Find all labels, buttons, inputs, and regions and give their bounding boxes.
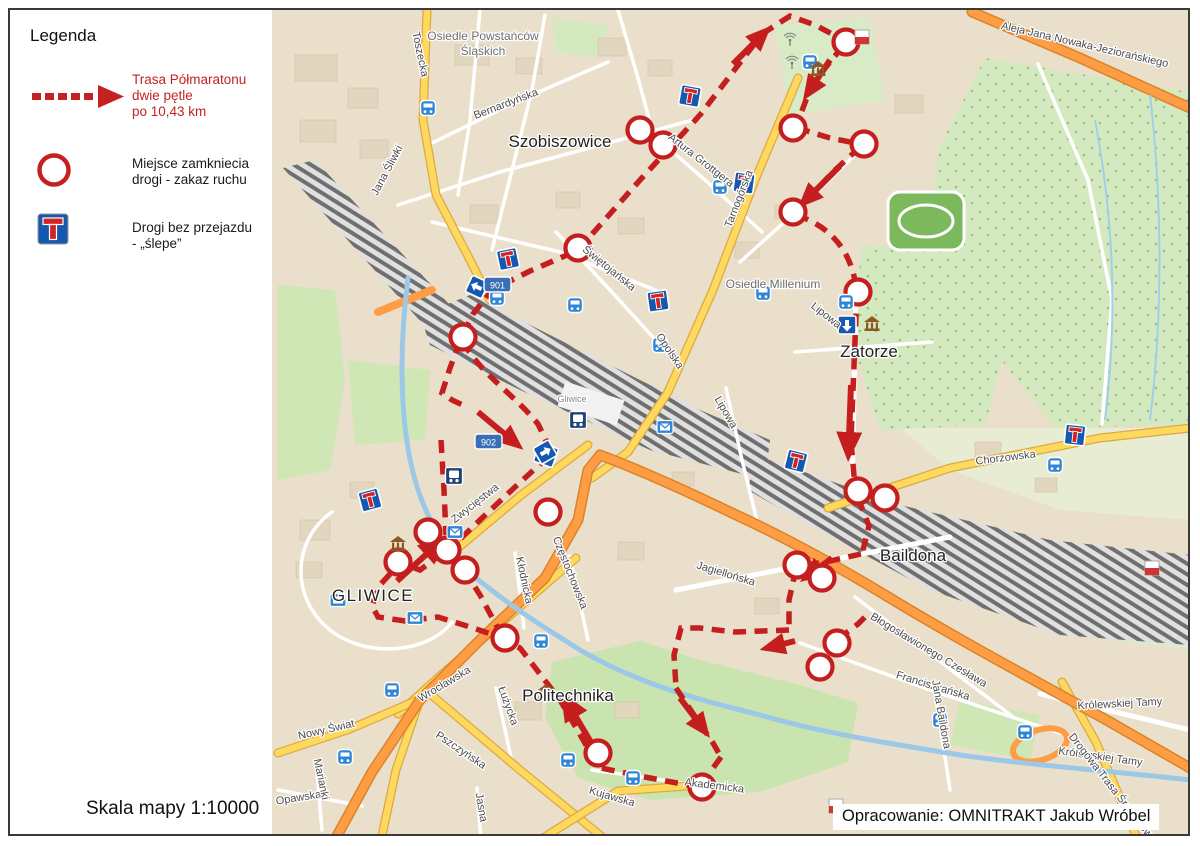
route-map-page: 901 902 Osiedle Powstańców Śląskich Szob… [0,0,1200,846]
bus-stop-icon [1048,458,1063,473]
dead-end-sign-icon [678,84,701,107]
place-label: Osiedle Powstańców [427,29,539,43]
road-closure-marker [825,631,850,656]
road-closure-marker [808,655,833,680]
svg-text:902: 902 [481,438,496,448]
post-office-icon [447,526,463,539]
flag-marker-icon [855,30,869,44]
road-closure-marker [435,538,460,563]
road-closure-marker [781,116,806,141]
legend-item-deadend: Drogi bez przejazdu - „ślepe” [30,210,270,260]
road-closure-marker [628,118,653,143]
place-label: Politechnika [522,686,614,705]
credit-label: Opracowanie: OMNITRAKT Jakub Wróbel [833,804,1159,830]
road-closure-marker [493,626,518,651]
dead-end-sign-icon [784,449,808,473]
bus-stop-icon [490,291,505,306]
road-closure-marker [873,486,898,511]
bus-stop-icon [338,750,353,765]
stadium [888,192,964,250]
road-closure-marker [846,479,871,504]
train-station-icon [570,412,587,429]
place-label-gliwice: GLIWICE [332,586,414,605]
bus-stop-icon [626,771,641,786]
bus-stop-icon [803,55,818,70]
road-closure-marker [785,553,810,578]
road-closure-marker [386,550,411,575]
legend-deadend-text: Drogi bez przejazdu - „ślepe” [132,220,252,252]
dead-end-sign-icon [36,212,70,246]
dead-end-sign-icon [1064,424,1086,446]
train-station-icon [446,468,463,485]
bus-stop-icon [385,683,400,698]
bus-stop-icon [1018,725,1033,740]
bus-stop-icon [421,101,436,116]
legend-item-route: Trasa Półmaratonu dwie pętle po 10,43 km [30,72,270,132]
bus-stop-icon [568,298,583,313]
place-label: Zatorze [840,342,898,361]
svg-text:901: 901 [490,281,505,291]
road-closure-marker [586,741,611,766]
legend-panel: Legenda Trasa Półmaratonu dwie pętle po … [10,10,272,836]
road-shield-901: 901 [484,277,511,292]
bus-stop-icon [534,634,549,649]
post-office-icon [407,612,423,625]
dead-end-sign-icon [496,247,520,271]
place-label: Osiedle Millenium [726,277,821,291]
flag-marker-icon [1145,561,1159,575]
place-label: Baildona [880,546,947,565]
dead-end-sign-icon [647,290,670,313]
legend-item-closure: Miejsce zamkniecia drogi - zakaz ruchu [30,148,270,198]
route-dash-arrow-icon [30,82,128,112]
map-scale-label: Skala mapy 1:10000 [86,798,259,820]
dead-end-sign-icon [358,488,382,512]
road-closure-marker [781,200,806,225]
legend-route-text: Trasa Półmaratonu dwie pętle po 10,43 km [132,72,246,120]
legend-title: Legenda [30,26,96,46]
bus-stop-icon [839,295,854,310]
station-label: Gliwice [557,394,586,404]
post-office-icon [657,421,673,434]
road-shield-902: 902 [475,434,502,449]
road-closure-marker [810,566,835,591]
place-label: Szobiszowice [509,132,612,151]
road-closure-marker [536,500,561,525]
road-closure-icon [34,150,74,190]
road-closure-marker [451,325,476,350]
road-closure-marker [852,132,877,157]
legend-closure-text: Miejsce zamkniecia drogi - zakaz ruchu [132,156,249,188]
place-label: Śląskich [461,43,506,58]
bus-stop-icon [561,753,576,768]
